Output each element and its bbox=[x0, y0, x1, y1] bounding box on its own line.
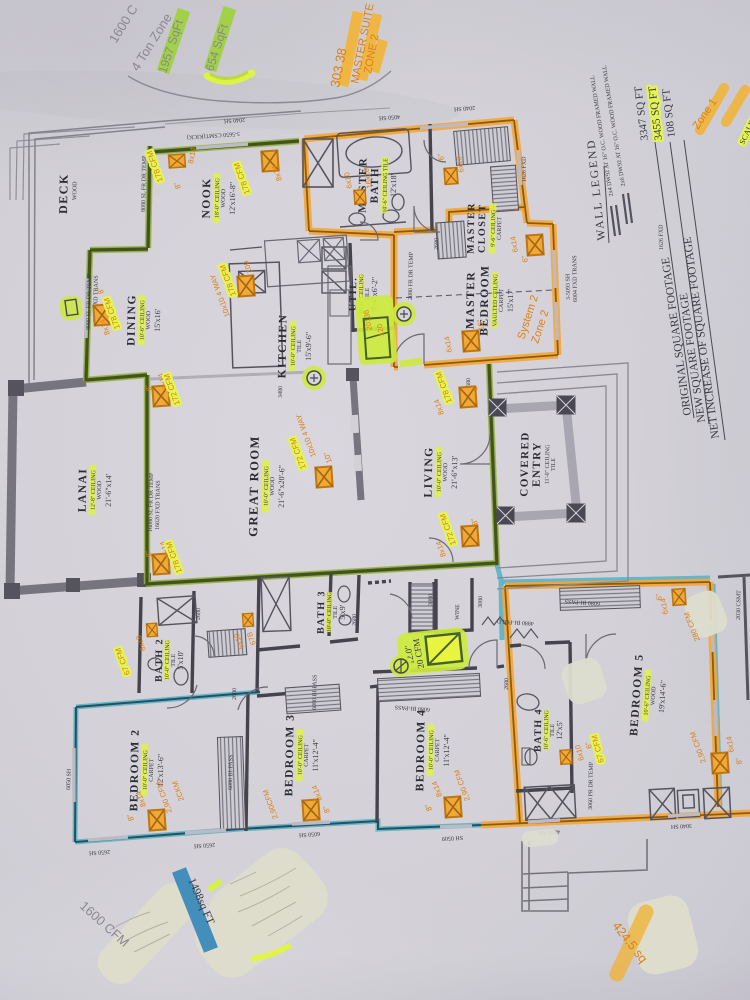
svg-text:WOOD: WOOD bbox=[443, 462, 449, 481]
svg-text:NOOK: NOOK bbox=[201, 177, 214, 218]
svg-text:5'x9': 5'x9' bbox=[338, 604, 347, 620]
svg-text:1626 FXD: 1626 FXD bbox=[659, 224, 665, 250]
svg-text:WOOD: WOOD bbox=[97, 480, 103, 499]
svg-text:CARPET: CARPET bbox=[304, 743, 310, 766]
svg-text:BATH 3: BATH 3 bbox=[316, 590, 328, 634]
svg-text:15'x9'-6": 15'x9'-6" bbox=[304, 332, 314, 361]
svg-text:12'x5': 12'x5' bbox=[555, 720, 564, 740]
svg-text:WOOD: WOOD bbox=[221, 188, 227, 207]
svg-text:11'x12'-4": 11'x12'-4" bbox=[311, 739, 321, 772]
svg-text:BATH 4: BATH 4 bbox=[533, 708, 545, 752]
svg-text:21'-6"x20'-6": 21'-6"x20'-6" bbox=[277, 465, 287, 508]
svg-text:12'x16'-8": 12'x16'-8" bbox=[228, 182, 238, 215]
svg-text:6080 BI-PASS: 6080 BI-PASS bbox=[228, 755, 235, 790]
svg-text:8080 SL FR DR TEMP: 8080 SL FR DR TEMP bbox=[86, 273, 93, 330]
svg-text:BATH 2: BATH 2 bbox=[154, 638, 166, 682]
svg-text:LANAI: LANAI bbox=[77, 468, 90, 513]
svg-text:16080 SL FR DR TEMP: 16080 SL FR DR TEMP bbox=[148, 472, 155, 532]
svg-text:3060 PR DR TEMP: 3060 PR DR TEMP bbox=[588, 761, 595, 810]
svg-text:6004 FXD TRANS: 6004 FXD TRANS bbox=[572, 255, 579, 302]
svg-text:CARPET: CARPET bbox=[149, 758, 155, 781]
svg-text:3040 SH: 3040 SH bbox=[670, 822, 692, 829]
svg-text:LIVING: LIVING bbox=[423, 446, 436, 497]
svg-text:BEDROOM 3: BEDROOM 3 bbox=[283, 713, 296, 796]
svg-text:3080: 3080 bbox=[428, 594, 434, 606]
svg-text:6050 SH: 6050 SH bbox=[66, 768, 73, 790]
svg-text:ENTRY: ENTRY bbox=[531, 441, 544, 487]
svg-text:TILE: TILE bbox=[297, 339, 303, 352]
svg-text:16020 FXD TRANS: 16020 FXD TRANS bbox=[155, 480, 162, 530]
svg-text:5'x10': 5'x10' bbox=[176, 650, 185, 670]
svg-text:CARPET: CARPET bbox=[499, 289, 505, 312]
svg-text:WOOD: WOOD bbox=[270, 476, 276, 495]
svg-text:COVERED: COVERED bbox=[518, 431, 531, 497]
svg-text:WOOD: WOOD bbox=[72, 181, 78, 200]
svg-text:CLOSET: CLOSET bbox=[477, 203, 489, 253]
svg-text:WINE: WINE bbox=[455, 604, 461, 620]
svg-text:2080 FR DR TEMP: 2080 FR DR TEMP bbox=[408, 251, 415, 300]
svg-text:DINING: DINING bbox=[126, 294, 139, 346]
svg-text:2680: 2680 bbox=[434, 238, 440, 250]
svg-text:21'-6"x13': 21'-6"x13' bbox=[450, 455, 460, 489]
svg-text:1626 FXD: 1626 FXD bbox=[522, 156, 528, 182]
svg-text:2030 CSMT: 2030 CSMT bbox=[736, 590, 743, 620]
svg-text:21'-6"x14': 21'-6"x14' bbox=[104, 473, 114, 507]
svg-text:11'x12'-4": 11'x12'-4" bbox=[442, 734, 452, 767]
svg-text:WOOD: WOOD bbox=[146, 310, 152, 329]
svg-text:SH 0509: SH 0509 bbox=[442, 834, 463, 841]
svg-text:CARPET: CARPET bbox=[497, 217, 503, 240]
svg-text:6080 BI-PASS: 6080 BI-PASS bbox=[312, 675, 319, 710]
svg-text:2680: 2680 bbox=[504, 678, 510, 690]
svg-text:3480: 3480 bbox=[278, 386, 284, 398]
svg-text:GREAT ROOM: GREAT ROOM bbox=[246, 435, 262, 537]
svg-text:2680: 2680 bbox=[352, 614, 358, 626]
svg-text:DECK: DECK bbox=[56, 173, 71, 214]
svg-text:MASTER: MASTER bbox=[466, 202, 478, 254]
svg-text:2680: 2680 bbox=[232, 688, 238, 700]
svg-text:KITCHEN: KITCHEN bbox=[276, 313, 289, 378]
svg-text:3080: 3080 bbox=[478, 596, 484, 608]
svg-text:2680: 2680 bbox=[196, 608, 202, 620]
svg-text:15'x16': 15'x16' bbox=[153, 308, 162, 332]
svg-text:CARPET: CARPET bbox=[435, 738, 441, 761]
svg-text:BEDROOM 4: BEDROOM 4 bbox=[414, 708, 427, 791]
svg-text:TILE: TILE bbox=[551, 458, 557, 471]
svg-text:8080 SL FR DR TEMP: 8080 SL FR DR TEMP bbox=[141, 155, 148, 212]
svg-text:12'x18': 12'x18' bbox=[389, 173, 398, 197]
svg-text:3-5093 SH: 3-5093 SH bbox=[566, 273, 572, 300]
